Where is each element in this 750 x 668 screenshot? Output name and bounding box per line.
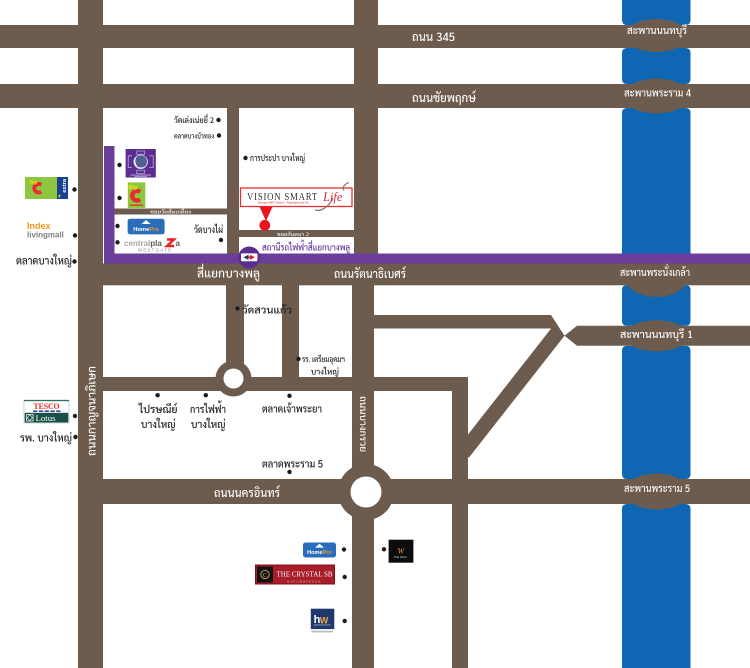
- svg-text:HomePro: HomePro: [133, 227, 159, 233]
- svg-text:Lotus: Lotus: [36, 413, 57, 423]
- svg-text:RATCHAPRUEK: RATCHAPRUEK: [287, 580, 321, 584]
- svg-text:extra: extra: [62, 178, 68, 193]
- svg-text:WESTGATE: WESTGATE: [138, 248, 172, 253]
- svg-text:Index: Index: [27, 221, 51, 231]
- svg-text:Bangplu MRT Station : Ratchaph: Bangplu MRT Station : Ratchaphruek Rd.: [258, 200, 310, 204]
- svg-text:THE CRYSTAL SB: THE CRYSTAL SB: [277, 571, 333, 579]
- svg-text:TESCO: TESCO: [34, 402, 60, 411]
- svg-text:HomePro: HomePro: [307, 550, 332, 556]
- svg-text:Life: Life: [322, 190, 343, 204]
- svg-text:W: W: [320, 615, 329, 625]
- svg-text:Big: Big: [129, 185, 139, 191]
- svg-text:THE WALK: THE WALK: [394, 555, 407, 559]
- svg-text:a: a: [176, 239, 181, 248]
- svg-text:C: C: [263, 572, 267, 579]
- svg-text:livingmall: livingmall: [27, 231, 64, 240]
- svg-text:Big: Big: [30, 180, 38, 186]
